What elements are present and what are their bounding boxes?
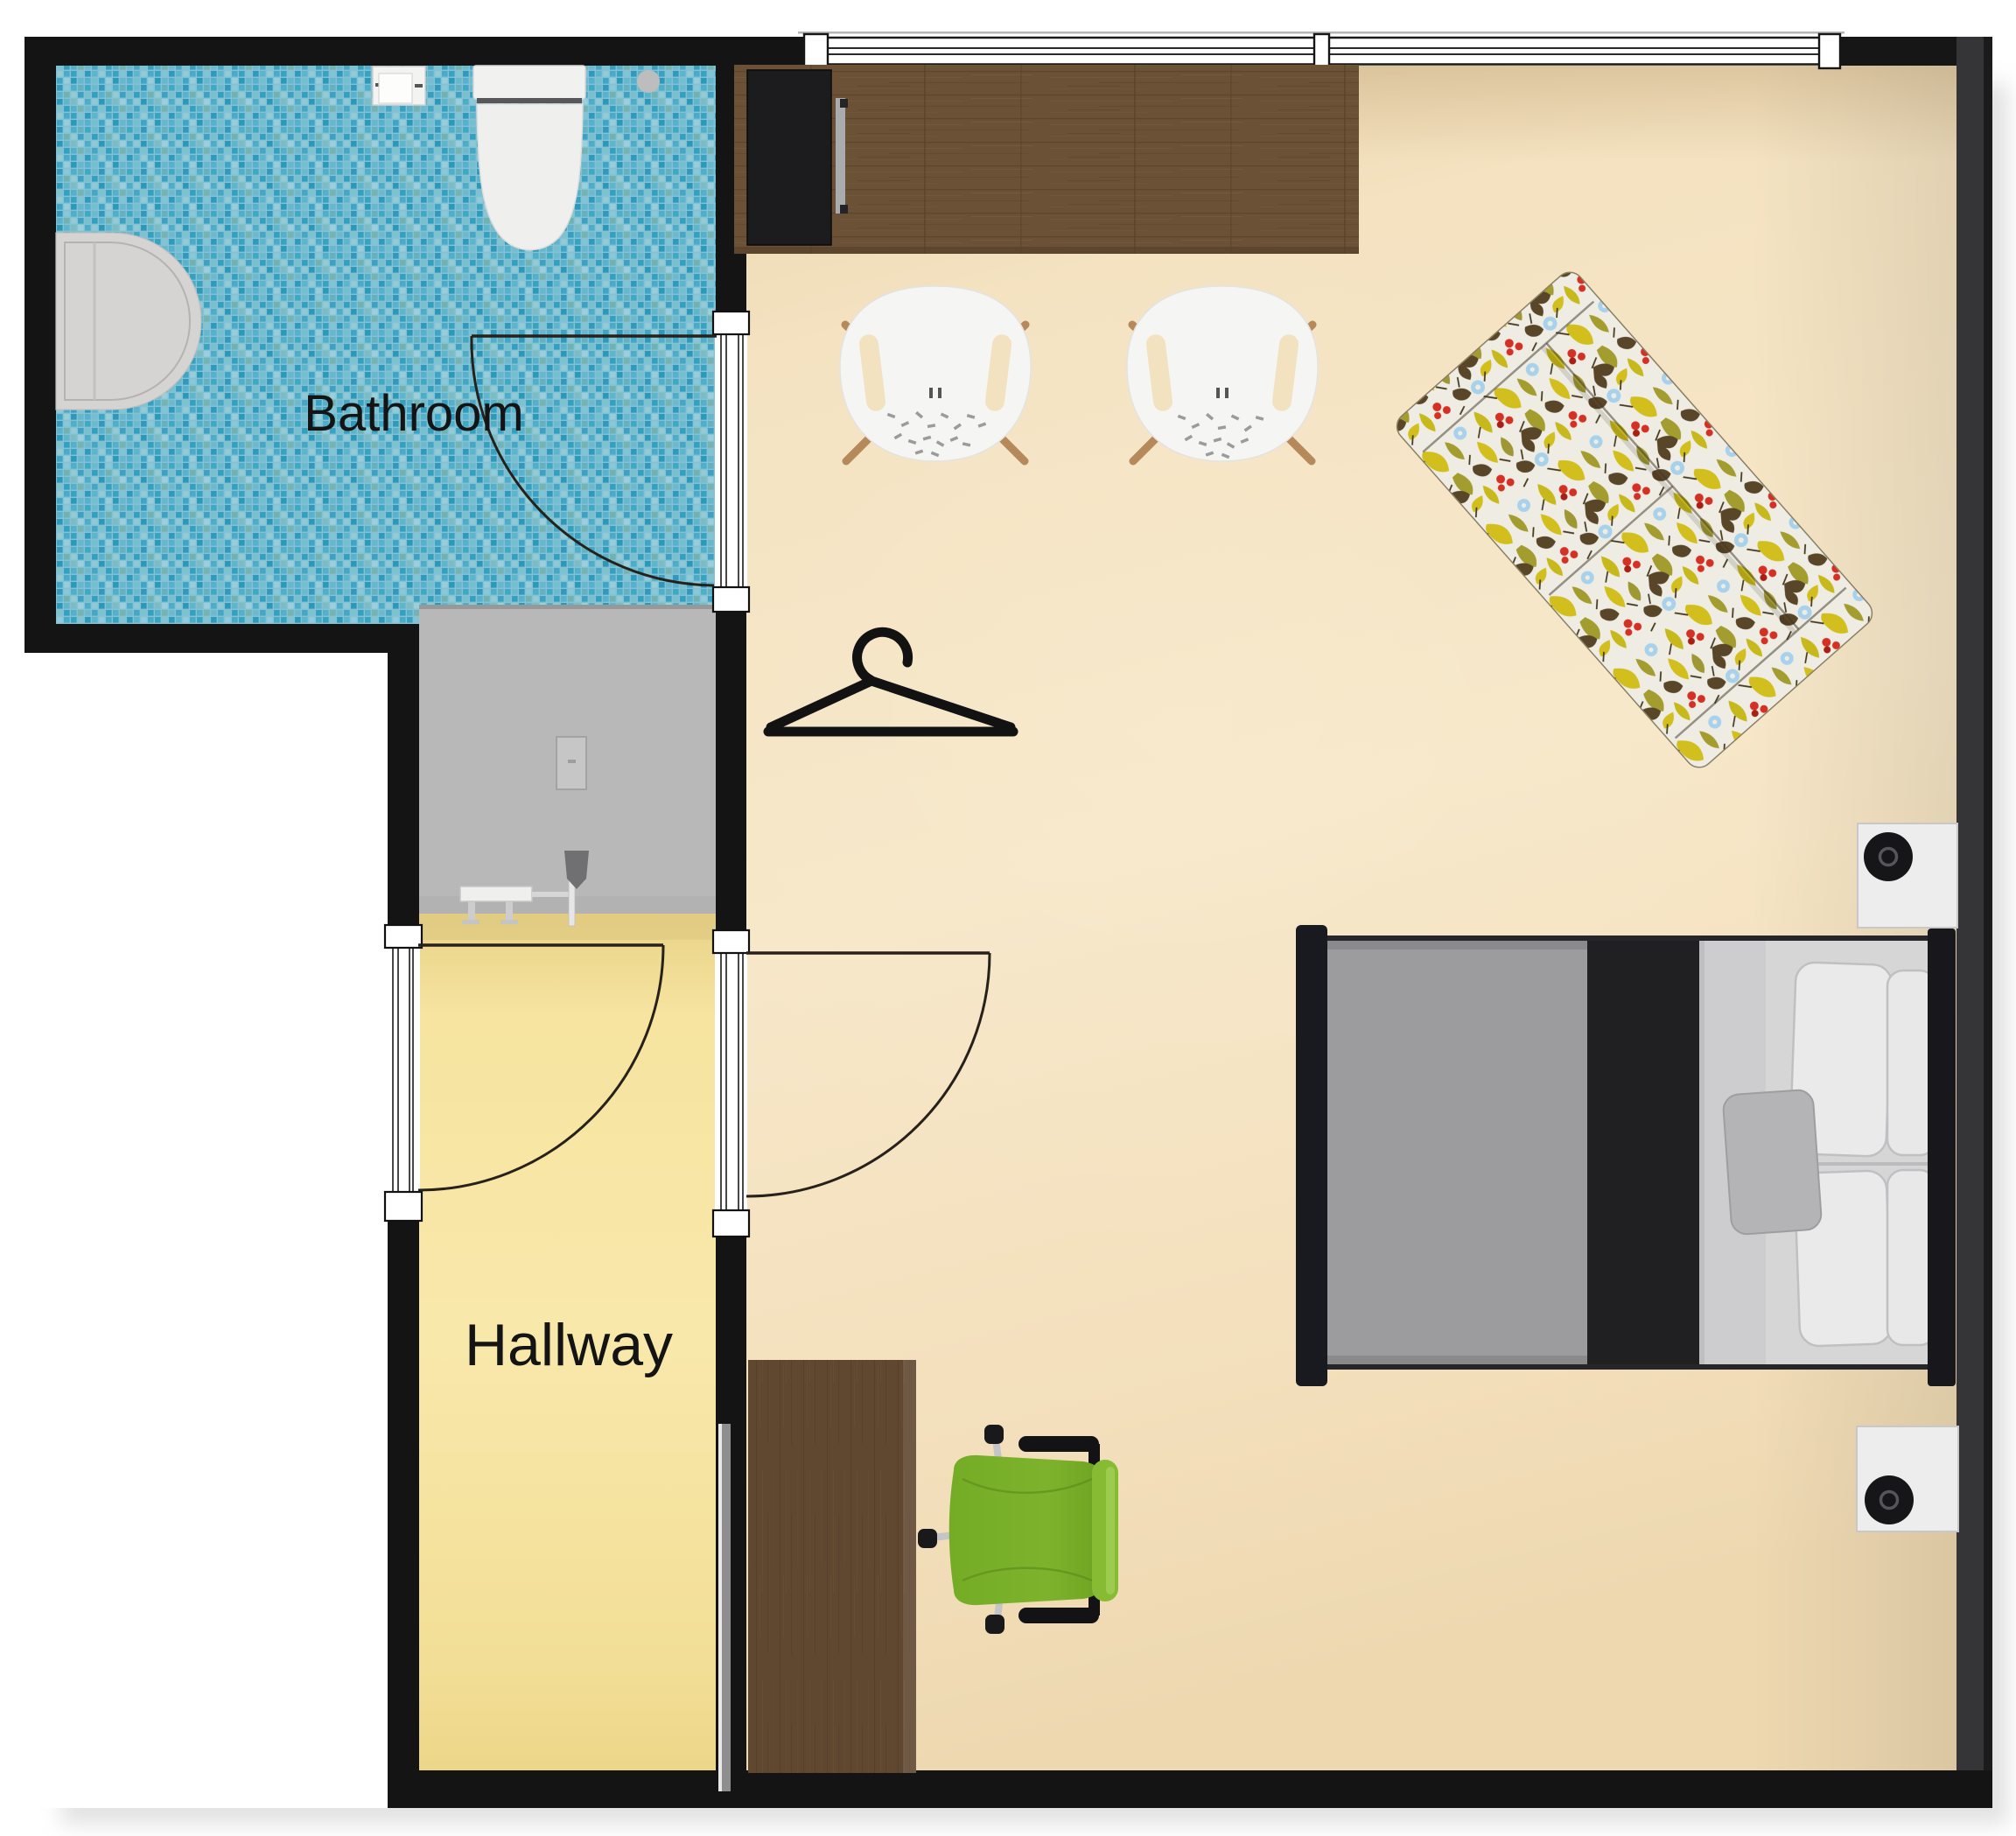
svg-text:Bathroom: Bathroom bbox=[304, 385, 523, 442]
svg-text:Hallway: Hallway bbox=[465, 1312, 673, 1378]
